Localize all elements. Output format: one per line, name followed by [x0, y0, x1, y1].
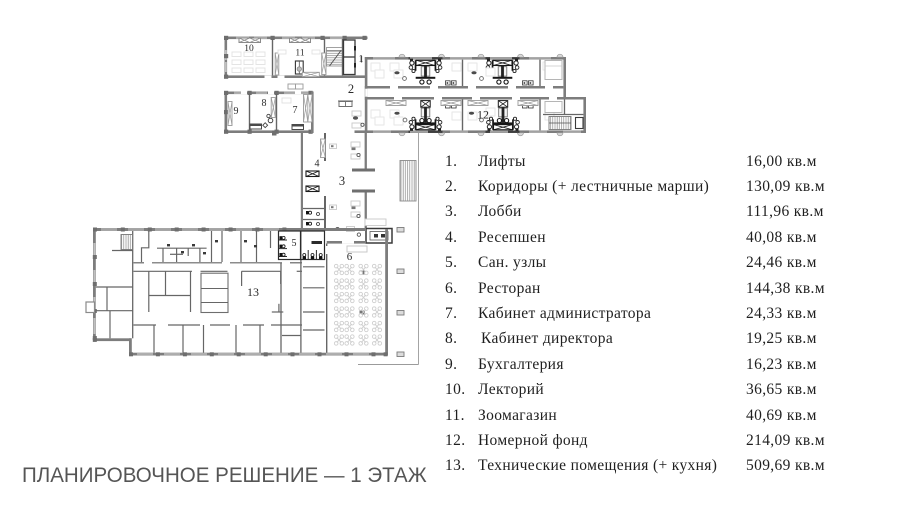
svg-text:7: 7 — [293, 105, 298, 116]
svg-text:5: 5 — [292, 238, 297, 249]
svg-text:11: 11 — [295, 49, 304, 59]
svg-text:8: 8 — [262, 98, 267, 109]
svg-text:13: 13 — [247, 285, 259, 299]
svg-text:12: 12 — [477, 108, 489, 122]
svg-text:10: 10 — [244, 44, 254, 54]
svg-text:9: 9 — [234, 106, 239, 117]
svg-text:6: 6 — [347, 251, 353, 263]
svg-text:2: 2 — [348, 82, 354, 96]
svg-text:1: 1 — [359, 54, 364, 65]
svg-text:4: 4 — [315, 159, 320, 170]
svg-text:3: 3 — [339, 174, 345, 188]
